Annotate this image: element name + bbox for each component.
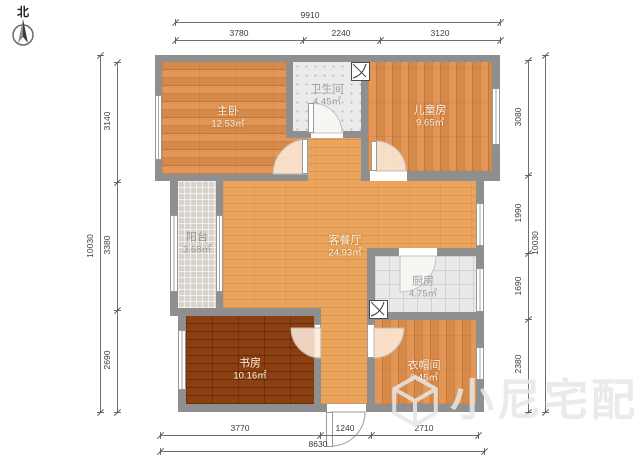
wall bbox=[155, 174, 308, 181]
kids-door-leaf bbox=[371, 141, 377, 171]
door-opening bbox=[399, 248, 437, 256]
dimension-label: 3140 bbox=[102, 112, 112, 131]
wall bbox=[170, 308, 321, 316]
window bbox=[170, 215, 178, 292]
flue-icon bbox=[351, 62, 370, 81]
floor-plan: 主卧 12.53㎡ 卫生间 4.45㎡ 儿童房 9.65㎡ 阳台 3.68㎡ 客… bbox=[0, 0, 640, 473]
dimension-label: 3120 bbox=[431, 28, 450, 38]
compass: 北 bbox=[8, 6, 38, 48]
dimension-label: 1990 bbox=[513, 204, 523, 223]
kitchen-door-arc bbox=[400, 256, 436, 292]
dimension-label: 3080 bbox=[513, 108, 523, 127]
door-opening bbox=[370, 171, 407, 181]
window bbox=[178, 330, 186, 390]
wall bbox=[155, 55, 500, 62]
wall bbox=[286, 55, 293, 138]
dimension-label: 1240 bbox=[336, 423, 355, 433]
north-label: 北 bbox=[8, 6, 38, 18]
dimension-label: 2710 bbox=[415, 423, 434, 433]
dimension-line bbox=[100, 55, 101, 412]
kids-door-arc bbox=[376, 141, 406, 171]
window bbox=[155, 95, 162, 160]
window bbox=[216, 215, 223, 292]
dimension-line bbox=[545, 55, 546, 412]
dimension-label: 2380 bbox=[513, 355, 523, 374]
dimension-label: 9910 bbox=[301, 10, 320, 20]
window bbox=[476, 268, 484, 312]
window bbox=[492, 88, 500, 145]
entrance-opening bbox=[327, 404, 366, 412]
dimension-line bbox=[528, 60, 529, 412]
dimension-line bbox=[117, 62, 118, 412]
balcony-floor bbox=[178, 181, 216, 308]
study-door-arc bbox=[291, 328, 321, 358]
dimension-label: 8630 bbox=[309, 439, 328, 449]
bathroom-door-arc bbox=[312, 103, 342, 133]
dimension-line bbox=[175, 40, 500, 41]
master-door-leaf bbox=[302, 139, 308, 174]
flue-icon bbox=[369, 300, 388, 319]
dimension-line bbox=[175, 22, 500, 23]
window bbox=[476, 347, 484, 380]
cloakroom-door-arc bbox=[374, 328, 404, 358]
window bbox=[476, 203, 484, 246]
dimension-label: 3380 bbox=[102, 236, 112, 255]
dimension-label: 1690 bbox=[513, 277, 523, 296]
dimension-line bbox=[160, 451, 484, 452]
dimension-label: 2690 bbox=[102, 351, 112, 370]
dimension-label: 3780 bbox=[230, 28, 249, 38]
bathroom-door-leaf bbox=[308, 103, 314, 133]
dimension-label: 2240 bbox=[332, 28, 351, 38]
compass-icon bbox=[9, 18, 37, 48]
dimension-label: 10030 bbox=[85, 234, 95, 258]
dimension-label: 3770 bbox=[231, 423, 250, 433]
dimension-label: 10030 bbox=[530, 231, 540, 255]
